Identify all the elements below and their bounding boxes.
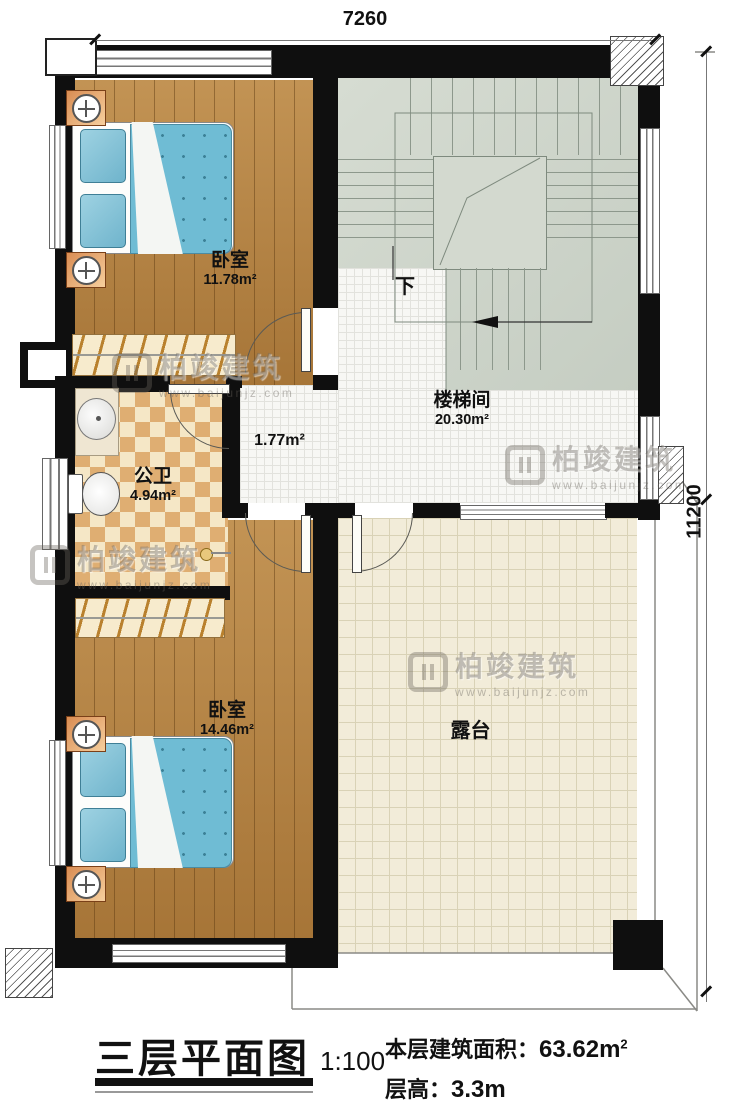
room-label-bedroom-top: 卧室 11.78m²	[165, 250, 295, 289]
room-name: 公卫	[98, 466, 208, 488]
room-label-stairwell: 楼梯间 20.30m²	[392, 390, 532, 429]
drawing-title: 三层平面图	[95, 1026, 310, 1084]
room-label-bathroom: 公卫 4.94m²	[98, 466, 208, 505]
nightstand-icon	[66, 90, 106, 126]
room-name: 卧室	[162, 700, 292, 722]
terrace-column	[613, 920, 663, 970]
wardrobe-bedroom-bottom	[75, 598, 225, 638]
faucet-icon	[96, 416, 101, 421]
lamp-icon	[72, 720, 101, 749]
dimension-line-top	[95, 40, 655, 41]
stairs-direction-arrow	[472, 316, 498, 328]
window-hall-right	[640, 416, 660, 500]
bed-bedroom-bottom	[72, 736, 234, 868]
wall-bedroom-stair-stub	[313, 375, 338, 390]
lamp-icon	[72, 256, 101, 285]
wardrobe-bedroom-top	[72, 334, 236, 376]
room-name: 卧室	[165, 250, 295, 272]
room-label-terrace: 露台	[428, 720, 513, 743]
nightstand-icon	[66, 252, 106, 288]
stairs-down-text: 下	[390, 276, 420, 299]
title-underline-thin	[95, 1091, 313, 1093]
room-area: 20.30m²	[392, 412, 532, 429]
room-area: 1.77m²	[232, 432, 327, 450]
floor-area-line: 本层建筑面积：63.62m2	[385, 1032, 628, 1064]
window-bathroom	[42, 458, 68, 550]
window-stairs-right	[640, 128, 660, 294]
floor-height-label: 层高：	[385, 1077, 451, 1102]
door-leaf-bathroom	[168, 384, 230, 394]
window-bedroom-top-left	[49, 125, 66, 249]
dimension-top-value: 7260	[330, 8, 400, 31]
floor-area-label: 本层建筑面积：	[385, 1037, 539, 1062]
window-bedroom-bottom	[112, 944, 286, 963]
room-area: 14.46m²	[162, 722, 292, 739]
floorplan-canvas: 7260 11200 卧室 11.78m² 楼梯间 20.30m² 1.77m²…	[0, 0, 750, 1114]
stairs-down-label: 下	[390, 276, 420, 299]
floor-height-value: 3.3m	[451, 1076, 506, 1103]
floor-height-line: 层高：3.3m	[385, 1072, 506, 1104]
wall-corridor-s3	[413, 503, 460, 518]
window-top	[95, 50, 272, 75]
dimension-right-value: 11200	[684, 477, 707, 547]
room-area: 11.78m²	[165, 272, 295, 289]
wall-bedroom-terrace	[313, 503, 338, 968]
pillow-icon	[80, 194, 126, 248]
floor-area-value: 63.62m	[539, 1036, 620, 1063]
hatch-topright	[610, 36, 664, 86]
room-area: 4.94m²	[98, 488, 208, 505]
title-underline-thick	[95, 1078, 313, 1086]
shower-arm	[211, 552, 231, 554]
pillow-icon	[80, 129, 126, 183]
floor-area-sup: 2	[620, 1037, 627, 1052]
window-terrace-wall	[460, 505, 607, 520]
hatch-right-mid	[658, 446, 684, 504]
room-label-bedroom-bottom: 卧室 14.46m²	[162, 700, 292, 739]
room-name: 露台	[428, 720, 513, 743]
hatch-bottomleft	[5, 948, 53, 998]
wall-bedroom-stair	[313, 45, 338, 308]
nightstand-icon	[66, 716, 106, 752]
room-name: 楼梯间	[392, 390, 532, 412]
lamp-icon	[72, 94, 101, 123]
door-leaf-bedroom-top	[301, 308, 311, 372]
drawing-scale: 1:100	[320, 1046, 385, 1077]
nightstand-icon	[66, 866, 106, 902]
window-bedroom-bottom-left	[49, 740, 66, 866]
door-leaf-bedroom-bottom	[301, 515, 311, 573]
lamp-icon	[72, 870, 101, 899]
room-label-hallway: 1.77m²	[232, 432, 327, 450]
shower-head-icon	[200, 548, 213, 561]
pillow-icon	[80, 808, 126, 862]
toilet-tank	[68, 474, 83, 514]
wall-corridor-s4	[605, 503, 660, 518]
door-leaf-terrace	[352, 515, 362, 573]
bed-bedroom-top	[72, 122, 234, 254]
